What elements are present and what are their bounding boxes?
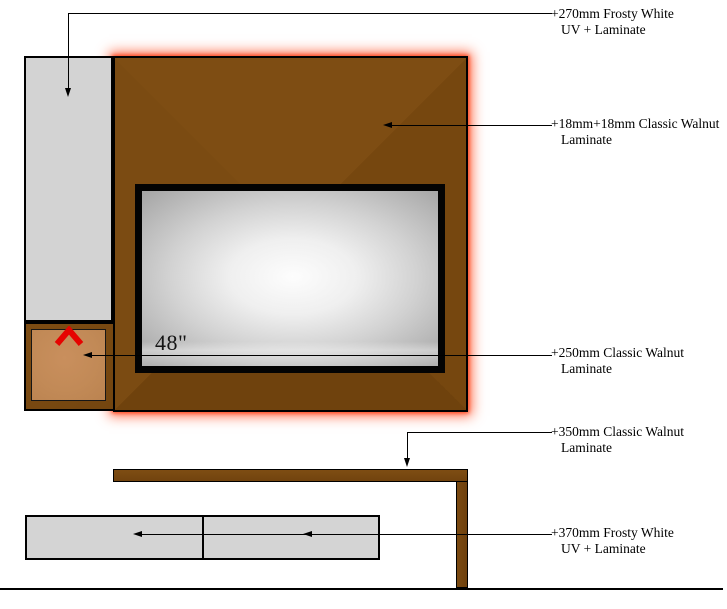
annotation-line: Laminate [551, 132, 723, 148]
shelf-top-panel [113, 469, 468, 482]
annotation-line: UV + Laminate [551, 22, 723, 38]
annotation-label-370mm: +370mm Frosty White UV + Laminate [551, 525, 723, 557]
arrow-left-icon [383, 122, 392, 128]
base-cabinet-divider [202, 517, 204, 558]
annotation-line: +18mm+18mm Classic Walnut [551, 116, 723, 132]
annotation-label-18mm: +18mm+18mm Classic Walnut Laminate [551, 116, 723, 148]
leader-line [89, 355, 552, 356]
arrow-left-icon [83, 352, 92, 358]
arrow-left-icon [303, 531, 312, 537]
annotation-line: +270mm Frosty White [551, 6, 723, 22]
annotation-label-350mm: +350mm Classic Walnut Laminate [551, 424, 723, 456]
base-cabinet [25, 515, 380, 560]
annotation-line: Laminate [551, 361, 723, 377]
leader-line [407, 432, 552, 433]
arrow-down-icon [65, 88, 71, 97]
tv-size-label: 48" [155, 330, 187, 356]
chevron-up-icon [54, 326, 84, 348]
leader-line [389, 125, 552, 126]
leader-line [139, 534, 552, 535]
annotation-line: Laminate [551, 440, 723, 456]
annotation-label-250mm: +250mm Classic Walnut Laminate [551, 345, 723, 377]
annotation-line: +350mm Classic Walnut [551, 424, 723, 440]
annotation-line: UV + Laminate [551, 541, 723, 557]
arrow-down-icon [404, 458, 410, 467]
design-canvas: 48" +270mm Frosty White UV + Laminate +1… [0, 0, 727, 609]
leader-line [68, 13, 552, 14]
floor-line [0, 588, 723, 590]
annotation-label-270mm: +270mm Frosty White UV + Laminate [551, 6, 723, 38]
annotation-line: +370mm Frosty White [551, 525, 723, 541]
leader-line [68, 13, 69, 90]
annotation-line: +250mm Classic Walnut [551, 345, 723, 361]
leader-line [407, 432, 408, 460]
arrow-left-icon [133, 531, 142, 537]
